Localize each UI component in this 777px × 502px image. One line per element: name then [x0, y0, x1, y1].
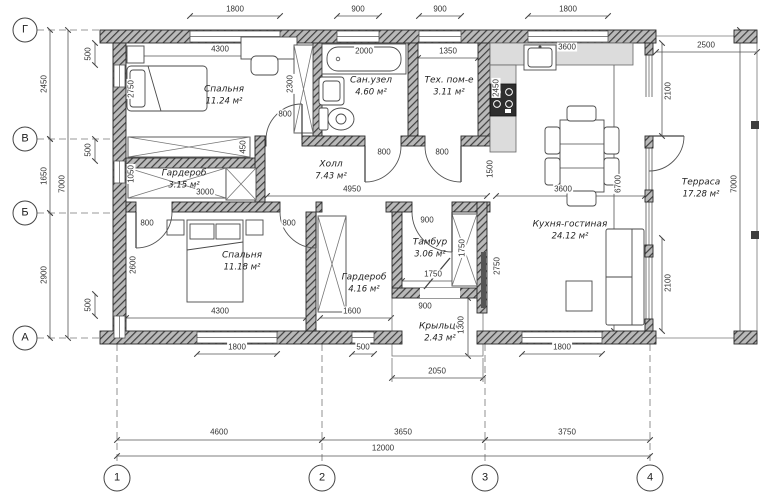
kitchen-sink	[524, 45, 556, 70]
grid-col-label: 3	[482, 473, 488, 484]
room-label-bedroom-1: Спальня11.24 м²	[204, 85, 244, 108]
dim-bottom-wardrobe-window: 500	[355, 343, 370, 352]
room-label-tech-room: Тех. пом-е3.11 м²	[424, 76, 473, 99]
grid-row-label: Б	[21, 208, 28, 219]
toilet	[319, 108, 354, 130]
dim-porch-width: 2050	[427, 367, 447, 376]
grid-row-label: А	[21, 333, 28, 344]
dim-top-kitchen-window: 1800	[558, 5, 578, 14]
dim-grid-2-3: 3650	[393, 428, 413, 437]
dim-porch-depth: 1300	[457, 315, 466, 335]
grid-col-label: 4	[647, 473, 653, 484]
dim-bathtub: 2000	[354, 47, 374, 56]
dim-door-bedroom2-right: 800	[281, 219, 296, 228]
dim-closet-depth: 450	[239, 139, 248, 154]
dim-left-offset-mid: 500	[84, 142, 93, 157]
dim-bottom-kitchen-window: 1800	[552, 343, 572, 352]
dim-door-bedroom2-left: 800	[139, 219, 154, 228]
dim-door-tech: 800	[434, 148, 449, 157]
dim-door-bedroom1: 800	[277, 110, 292, 119]
dim-right-total: 7000	[730, 174, 739, 194]
room-label-bedroom-2: Спальня11.18 м²	[222, 251, 262, 274]
dim-bed1-length: 2750	[127, 79, 136, 99]
glazed-wall	[643, 43, 654, 331]
dim-bedroom2-width: 4300	[210, 307, 230, 316]
room-label-hall: Холл7.43 м²	[315, 160, 346, 183]
dim-hall-height: 1500	[486, 159, 495, 179]
dim-left-offset-bottom: 500	[84, 297, 93, 312]
room-label-vestibule: Тамбур3.06 м²	[413, 238, 447, 261]
dim-counter-vertical: 2450	[492, 78, 501, 98]
grid-col-label: 2	[319, 473, 325, 484]
dim-terrace-width: 2500	[696, 41, 716, 50]
dim-bedroom1-width: 4300	[210, 45, 230, 54]
room-label-kitchen-living: Кухня-гостиная24.12 м²	[533, 220, 608, 243]
room-label-terrace: Терраса17.28 м²	[682, 178, 720, 201]
dim-left-total: 7000	[58, 174, 67, 194]
dim-top-tech-window: 900	[432, 5, 447, 14]
dim-bedroom2-height: 2600	[129, 255, 138, 275]
dim-left-b-a: 2900	[40, 265, 49, 285]
dim-tech-width: 1350	[438, 47, 458, 56]
grid-row-label: Г	[22, 25, 28, 36]
coffee-table	[566, 281, 592, 311]
dim-door-bathroom: 800	[376, 148, 391, 157]
dim-kitchen-wall-lower: 2750	[493, 256, 502, 276]
terrace-post	[751, 121, 759, 129]
dim-left-v-b: 1650	[40, 166, 49, 186]
dim-left-offset-top: 500	[84, 46, 93, 61]
sofa	[606, 229, 644, 325]
dim-top-bedroom-window: 1800	[225, 5, 245, 14]
tv-panel	[481, 252, 486, 308]
dim-top-bath-window: 900	[350, 5, 365, 14]
room-label-bathroom: Сан.узел4.60 м²	[350, 76, 392, 99]
dim-terrace-lower: 2100	[664, 273, 673, 293]
chair	[251, 56, 278, 75]
dim-kitchen-width: 3600	[553, 185, 573, 194]
dim-wardrobe1-length: 3000	[195, 188, 215, 197]
grid-row-label: В	[21, 134, 28, 145]
dim-vestibule-width: 1750	[423, 270, 443, 279]
dim-vestibule-height: 1750	[458, 238, 467, 258]
floor-plan: Г В Б А 1 2 3 4 Спальня11.24 м² Сан.узел…	[0, 0, 777, 502]
dim-door-porch: 900	[417, 302, 432, 311]
dim-grid-total: 12000	[371, 444, 395, 453]
dim-grid-3-4: 3750	[557, 428, 577, 437]
nightstand	[127, 46, 144, 63]
dim-hall-width: 4950	[342, 185, 362, 194]
room-label-wardrobe-2: Гардероб4.16 м²	[342, 273, 387, 296]
dim-wardrobe2-width: 1600	[342, 307, 362, 316]
dim-bottom-bedroom2-window: 1800	[227, 343, 247, 352]
dim-kitchen-length: 6700	[614, 174, 623, 194]
dim-left-g-v: 2450	[40, 74, 49, 94]
dim-door-vestibule: 900	[419, 216, 434, 225]
dim-wardrobe1-depth: 1050	[127, 164, 136, 184]
terrace-post	[751, 231, 759, 239]
dim-terrace-upper: 2100	[664, 81, 673, 101]
dim-counter-length: 3600	[557, 43, 577, 52]
room-label-porch: Крыльцо2.43 м²	[419, 322, 461, 345]
dim-wardrobe-bedroom1: 2300	[286, 74, 295, 94]
grid-col-label: 1	[114, 473, 120, 484]
dim-grid-1-2: 4600	[209, 428, 229, 437]
